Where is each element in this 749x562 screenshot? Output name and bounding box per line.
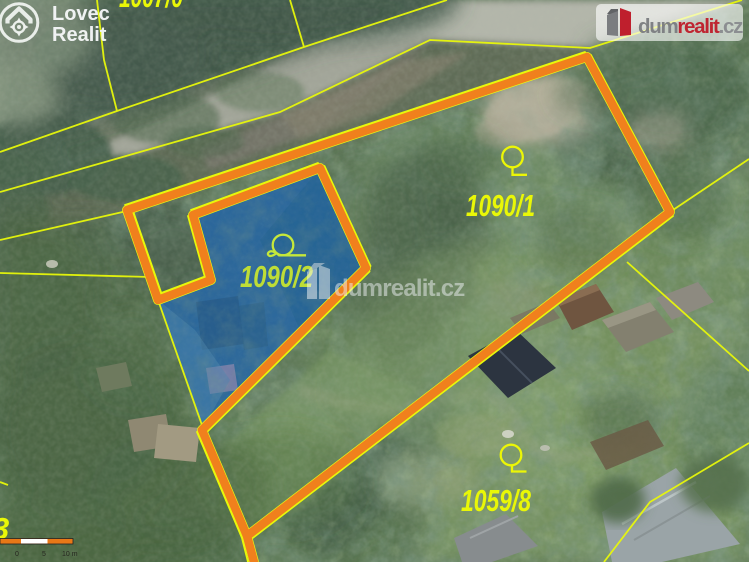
svg-text:1090/1: 1090/1 <box>466 188 535 223</box>
svg-text:0: 0 <box>15 551 19 558</box>
svg-text:dumrealit.cz: dumrealit.cz <box>638 15 743 38</box>
svg-text:Realit: Realit <box>52 24 107 46</box>
svg-text:1059/8: 1059/8 <box>461 483 532 518</box>
svg-text:1007/0: 1007/0 <box>119 0 183 14</box>
svg-text:Lovec: Lovec <box>52 3 110 25</box>
svg-text:1090/2: 1090/2 <box>240 259 313 294</box>
svg-text:5: 5 <box>42 551 46 558</box>
svg-text:dumrealit.cz: dumrealit.cz <box>334 275 465 302</box>
svg-text:10 m: 10 m <box>62 551 78 558</box>
